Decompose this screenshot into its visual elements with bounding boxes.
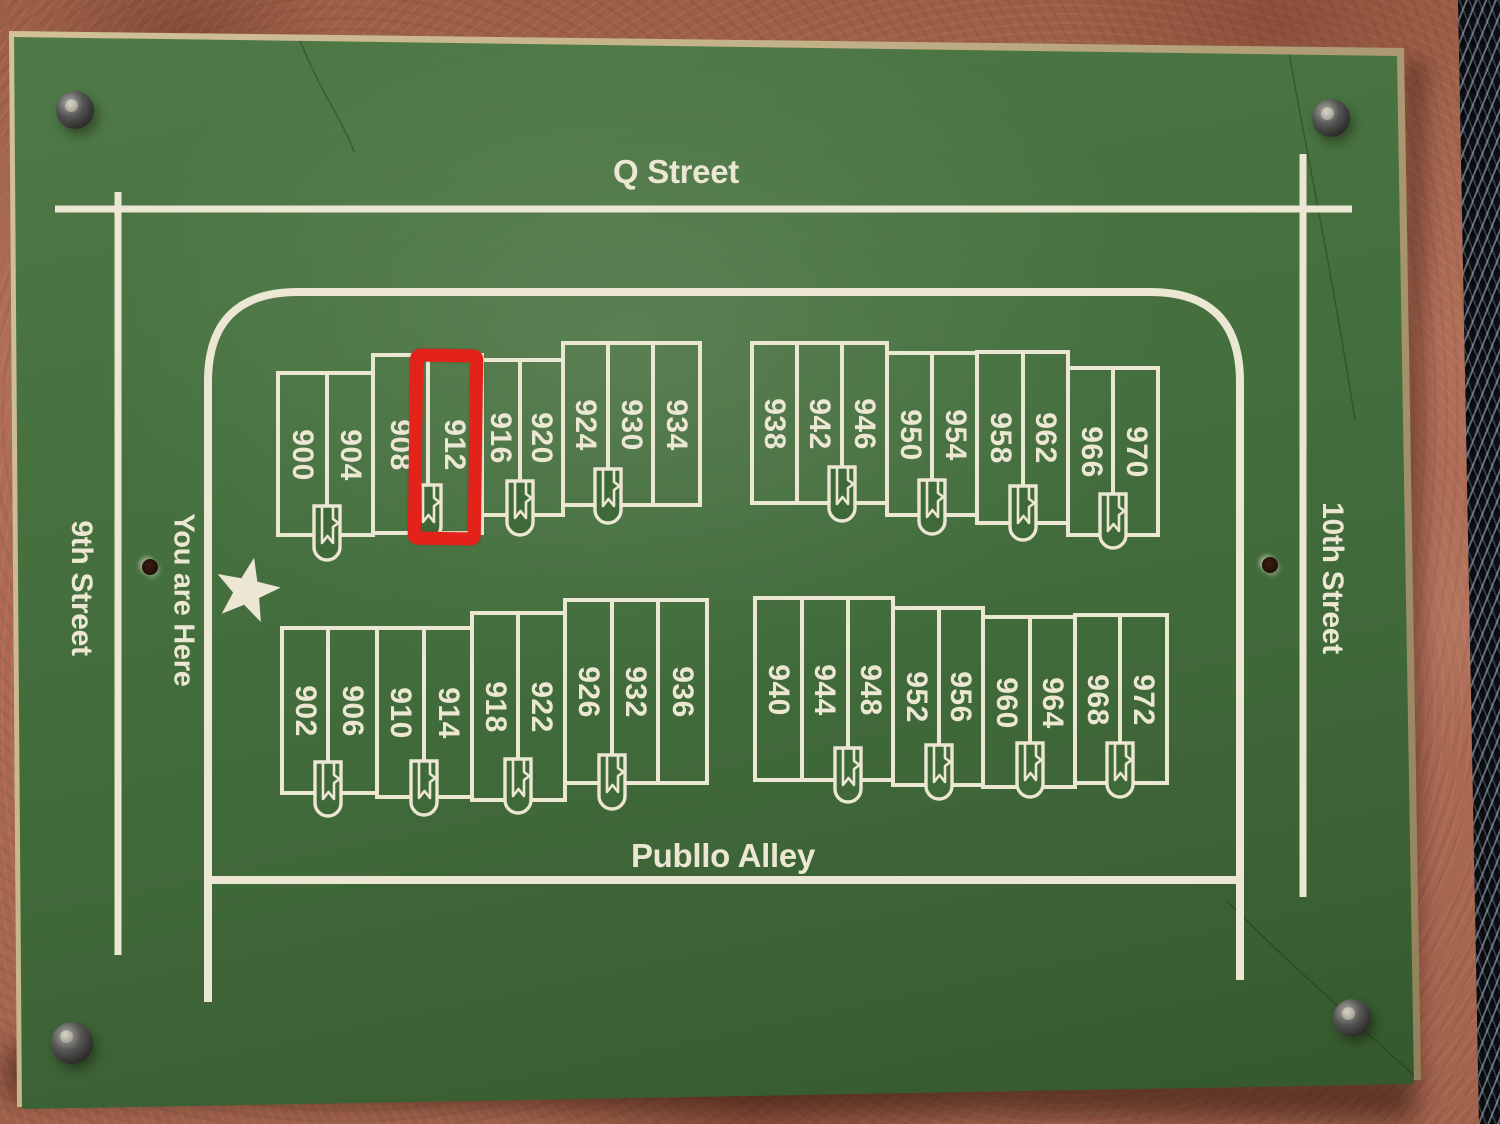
unit-label-950: 950 <box>893 409 927 461</box>
screw-top-left-icon <box>56 91 94 129</box>
unit-label-922: 922 <box>524 681 558 733</box>
alley-label: Publlo Alley <box>631 837 815 875</box>
unit-label-906: 906 <box>335 685 369 737</box>
unit-label-924: 924 <box>568 399 602 451</box>
entry-key-icon <box>314 506 340 560</box>
unit-label-918: 918 <box>478 681 512 733</box>
entry-key-icon <box>1100 494 1126 548</box>
unit-label-958: 958 <box>983 412 1017 464</box>
entry-key-icon <box>595 469 621 523</box>
unit-label-944: 944 <box>807 664 841 716</box>
you-are-here-label: You are Here <box>167 513 200 686</box>
screw-bottom-left-icon <box>51 1022 93 1064</box>
scratch-marks <box>300 30 1425 1086</box>
boundary-curb-line <box>208 292 1240 1002</box>
photo-of-map-sign: Q Street 9th Street 10th Street Publlo A… <box>0 0 1500 1124</box>
unit-label-910: 910 <box>383 687 417 739</box>
sign-board: Q Street 9th Street 10th Street Publlo A… <box>0 0 1500 1124</box>
entry-key-icon <box>315 762 341 816</box>
tenth-street-label: 10th Street <box>1315 502 1349 654</box>
unit-912-highlight <box>408 348 484 545</box>
unit-label-946: 946 <box>847 398 881 450</box>
unit-label-900: 900 <box>285 429 319 481</box>
entry-key-icon <box>1017 743 1043 797</box>
unit-label-960: 960 <box>989 677 1023 729</box>
you-are-here-star-icon <box>210 551 286 625</box>
street-lines <box>55 154 1352 955</box>
unit-label-938: 938 <box>757 398 791 450</box>
unit-label-930: 930 <box>614 399 648 451</box>
unit-label-914: 914 <box>431 687 465 739</box>
unit-label-972: 972 <box>1126 674 1160 726</box>
entry-key-icon <box>829 467 855 521</box>
unit-label-936: 936 <box>665 666 699 718</box>
entry-key-icon <box>835 748 861 802</box>
unit-label-920: 920 <box>524 412 558 464</box>
entry-key-icon <box>505 759 531 813</box>
unit-label-970: 970 <box>1119 426 1153 478</box>
drill-hole-right <box>1262 557 1278 573</box>
drill-hole-left <box>142 559 158 575</box>
unit-label-964: 964 <box>1035 677 1069 729</box>
entry-key-icon <box>1010 486 1036 540</box>
entry-key-icon <box>411 761 437 815</box>
screw-bottom-right-icon <box>1333 999 1371 1037</box>
entry-key-icon <box>926 745 952 799</box>
unit-label-954: 954 <box>938 409 972 461</box>
unit-label-902: 902 <box>288 685 322 737</box>
unit-label-940: 940 <box>761 664 795 716</box>
entry-key-icon <box>507 481 533 535</box>
ninth-street-label: 9th Street <box>64 520 98 655</box>
unit-label-956: 956 <box>943 671 977 723</box>
unit-label-904: 904 <box>333 429 367 481</box>
entry-key-icon <box>1107 743 1133 797</box>
unit-label-966: 966 <box>1074 426 1108 478</box>
entry-key-icon <box>919 480 945 534</box>
unit-label-948: 948 <box>853 664 887 716</box>
unit-label-926: 926 <box>571 666 605 718</box>
entry-key-icon <box>599 755 625 809</box>
unit-label-932: 932 <box>618 666 652 718</box>
unit-label-968: 968 <box>1080 674 1114 726</box>
unit-label-942: 942 <box>802 398 836 450</box>
screw-top-right-icon <box>1312 99 1350 137</box>
unit-label-962: 962 <box>1028 412 1062 464</box>
property-boundary <box>208 292 1240 1002</box>
unit-label-916: 916 <box>483 412 517 464</box>
unit-label-952: 952 <box>899 671 933 723</box>
q-street-label: Q Street <box>613 153 739 191</box>
unit-label-934: 934 <box>659 399 693 451</box>
